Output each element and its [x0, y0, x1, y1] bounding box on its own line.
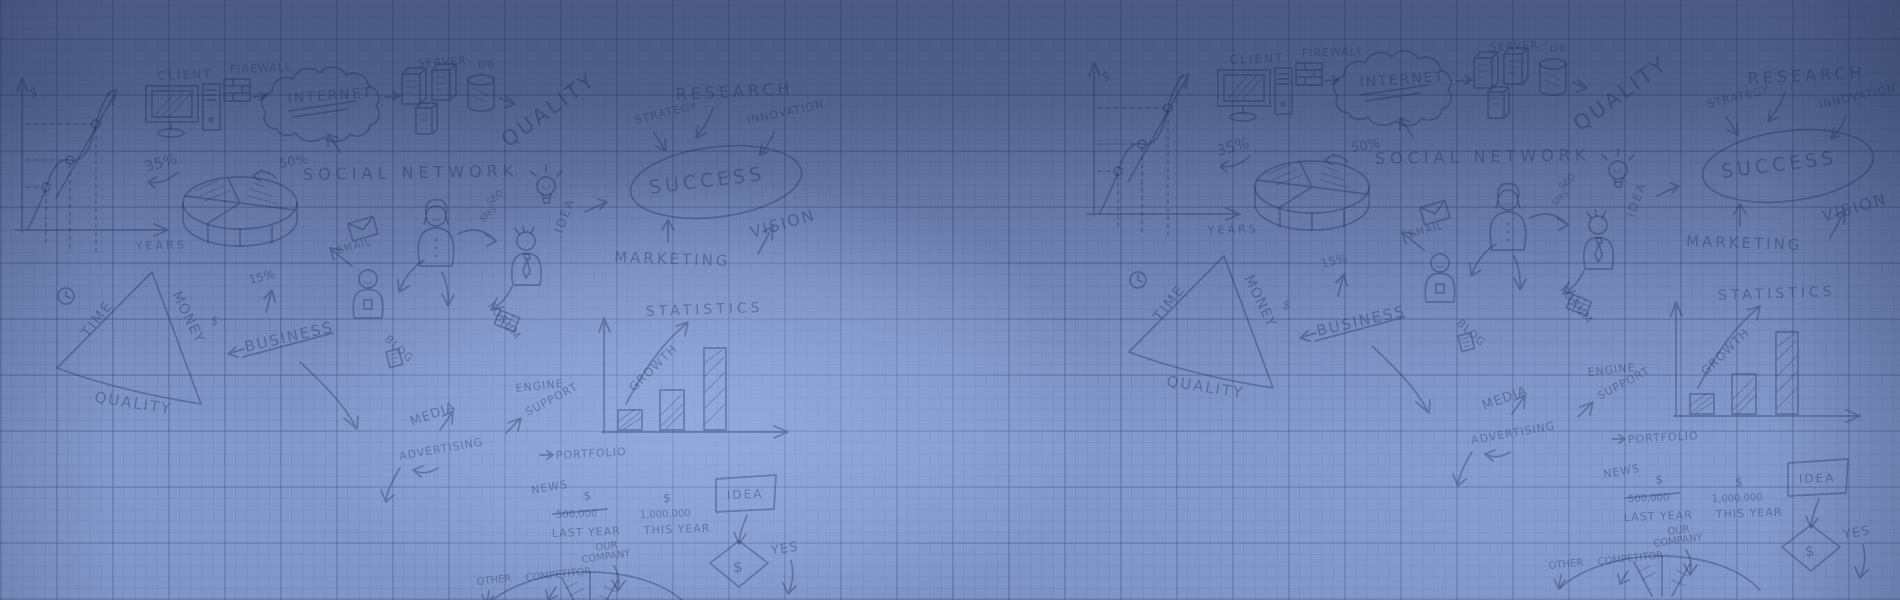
market-share-pie-doodle: OUR COMPANY COMPETITOR OTHER	[476, 540, 688, 600]
time-money-quality-triangle: TIME MONEY QUALITY $	[57, 272, 220, 418]
advertising-label: ADVERTISING	[398, 435, 484, 463]
advertising-arrow	[413, 466, 438, 477]
forum-doodle: FORUM	[485, 300, 524, 343]
money-label: MONEY	[168, 289, 207, 346]
database-doodle: DB	[468, 60, 515, 111]
statistics-bar-chart: STATISTICS GROWTH	[599, 300, 788, 438]
innovation-label: INNOVATION	[746, 98, 826, 127]
company-label: COMPANY	[581, 548, 632, 566]
vision-label: VISION	[748, 205, 818, 242]
years-axis-label: YEARS	[135, 238, 187, 253]
pct35-arrow	[148, 172, 178, 188]
sms-label: SMS	[478, 205, 499, 225]
last-year-dollar: $	[583, 488, 592, 503]
support-arrow	[506, 418, 521, 433]
this-year-label: THIS YEAR	[643, 522, 711, 537]
year-comparison-doodle: $ 500,000 LAST YEAR $ 1,000,000 THIS YEA…	[552, 488, 711, 540]
quality-diagonal-label: QUALITY	[497, 67, 601, 152]
db-label: DB	[478, 60, 495, 71]
growth-label: GROWTH	[626, 341, 680, 394]
pct15-arrow	[264, 290, 275, 312]
yes-label: YES	[769, 539, 800, 559]
doodle-tile: $ YEARS 35% 50% SOCIAL NETWORK	[15, 54, 825, 600]
server-doodle: SERVER	[402, 54, 467, 134]
this-year-dollar: $	[663, 491, 671, 505]
firewall-doodle: FIREWALL	[224, 61, 292, 101]
idea-to-success-arrow	[585, 199, 607, 212]
other-label: OTHER	[476, 573, 512, 588]
internet-cloud-doodle: INTERNET	[262, 67, 379, 153]
success-doodle: SUCCESS	[626, 137, 805, 227]
blog-doodle: BLOG	[382, 333, 416, 368]
success-label: SUCCESS	[648, 163, 766, 199]
time-label: TIME	[78, 298, 117, 341]
last-year-label: LAST YEAR	[552, 525, 621, 540]
people-group-doodle	[330, 200, 541, 318]
business-doodles-layer: $ YEARS 35% 50% SOCIAL NETWORK	[0, 0, 1900, 600]
doodle-tile-repeat	[1087, 38, 1897, 596]
idea-box-label: IDEA	[727, 487, 764, 502]
firewall-label: FIREWALL	[230, 61, 293, 76]
this-year-value: 1,000,000	[640, 508, 691, 521]
pct15-label: 15%	[247, 267, 276, 287]
idea-diagonal-label: IDEA	[552, 196, 578, 235]
idea-flowchart-doodle: IDEA $ YES	[710, 475, 800, 594]
statistics-label: STATISTICS	[646, 300, 764, 320]
decision-dollar-label: $	[733, 558, 743, 576]
seo-label: SEO	[485, 188, 505, 208]
portfolio-label: PORTFOLIO	[555, 445, 626, 462]
internet-label: INTERNET	[287, 85, 374, 107]
marketing-label: MARKETING	[614, 248, 731, 270]
business-doodle: BUSINESS	[228, 318, 358, 429]
marketing-arrow	[662, 220, 674, 242]
cloud-to-server-arrow	[385, 92, 400, 100]
portfolio-arrow	[540, 451, 553, 459]
dollar-axis-label: $	[29, 85, 39, 101]
pie-chart-doodle	[183, 177, 297, 246]
news-label: NEWS	[530, 478, 569, 497]
doodle-banner: $ YEARS 35% 50% SOCIAL NETWORK	[0, 0, 1900, 600]
competitor-label: COMPETITOR	[525, 566, 592, 584]
email-label: EMAIL	[336, 237, 373, 257]
lightbulb-doodle	[530, 165, 562, 203]
client-label: CLIENT	[158, 67, 213, 83]
money-dollar-label: $	[209, 313, 219, 328]
client-computer-doodle: CLIENT	[146, 67, 220, 137]
strategy-label: STRATEGY	[634, 99, 699, 127]
down-left-arrow	[381, 468, 400, 502]
research-arrow	[696, 108, 713, 138]
quality-triangle-label: QUALITY	[93, 388, 173, 418]
social-network-label: SOCIAL NETWORK	[303, 161, 519, 184]
email-doodle: EMAIL	[336, 216, 378, 256]
pct35-label: 35%	[142, 150, 179, 176]
strategy-arrow	[654, 132, 666, 151]
innovation-arrow	[759, 132, 774, 155]
